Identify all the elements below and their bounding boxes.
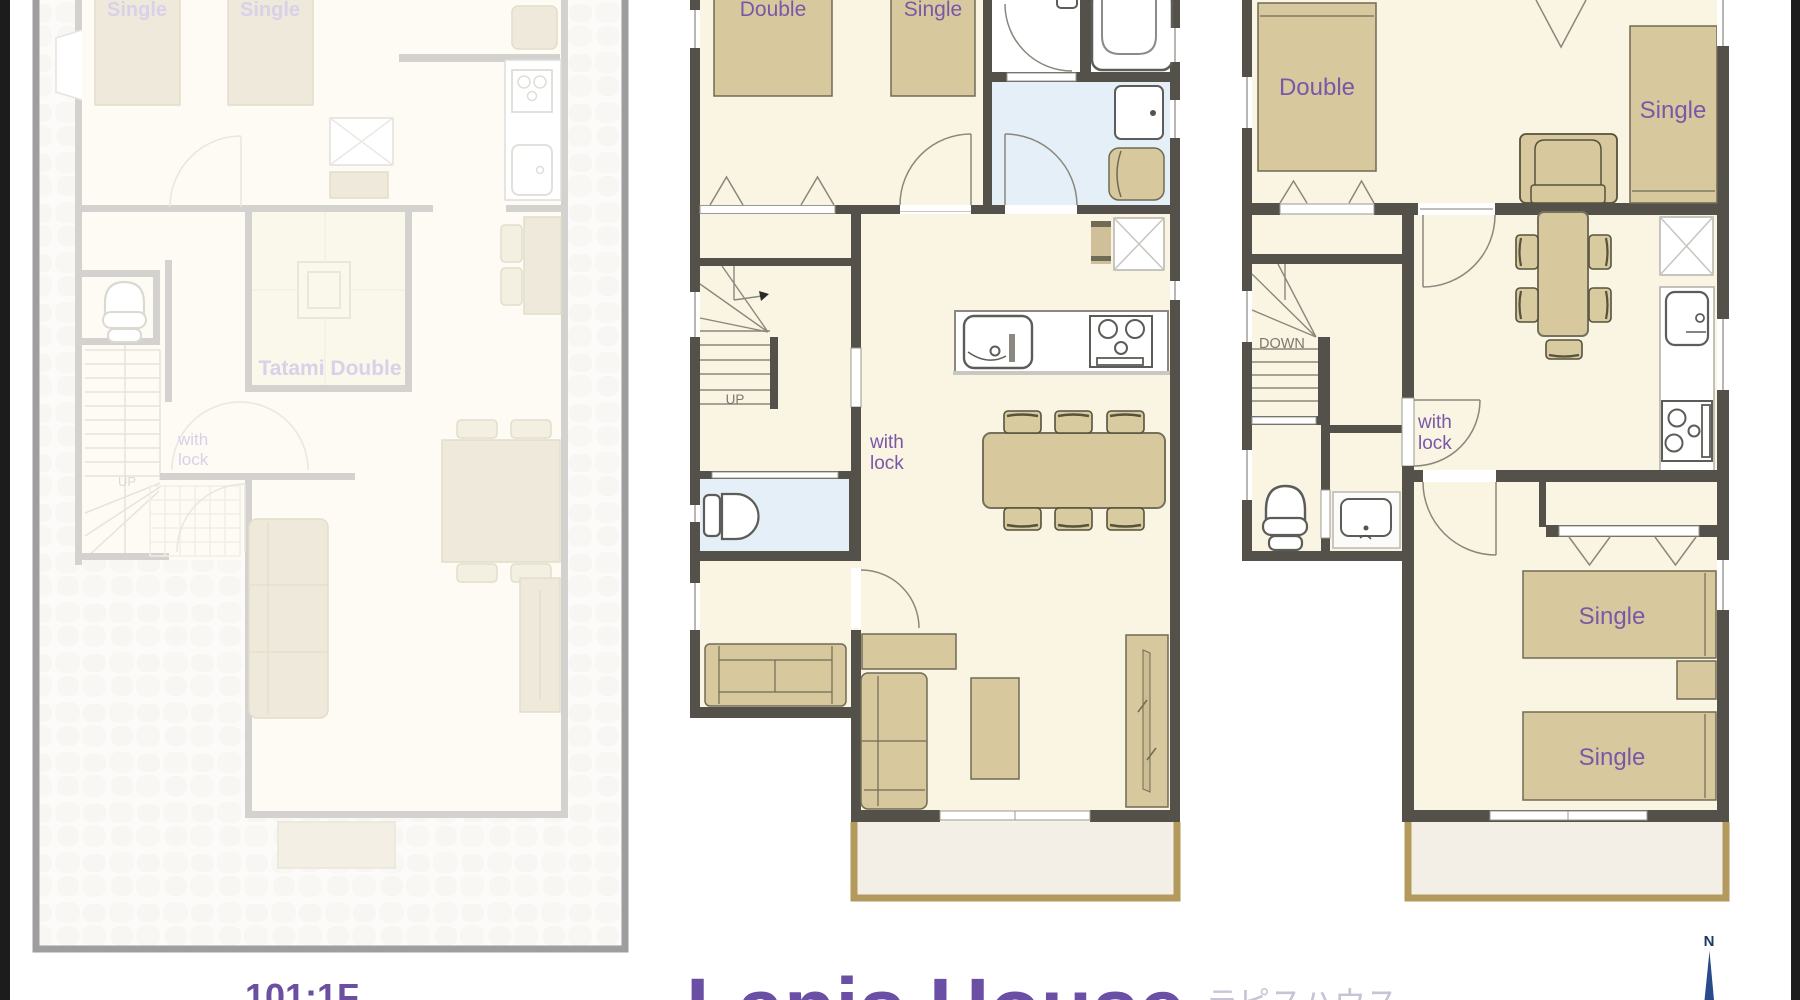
svg-text:Single: Single (107, 0, 167, 21)
svg-text:Single: Single (1579, 744, 1646, 771)
svg-text:Tatami Double: Tatami Double (258, 357, 401, 380)
svg-text:lock: lock (178, 450, 209, 469)
svg-text:Single: Single (1579, 603, 1646, 630)
svg-text:lock: lock (870, 453, 904, 474)
svg-text:lock: lock (1418, 433, 1452, 454)
svg-text:with: with (177, 430, 208, 449)
svg-text:N: N (1704, 933, 1715, 950)
svg-text:DOWN: DOWN (1259, 336, 1305, 352)
svg-text:101:1F: 101:1F (245, 976, 359, 1000)
svg-text:UP: UP (726, 392, 745, 407)
svg-text:with: with (1417, 412, 1452, 433)
svg-text:with: with (869, 432, 904, 453)
svg-text:Single: Single (904, 0, 962, 21)
svg-text:Double: Double (1279, 74, 1355, 101)
svg-text:Double: Double (740, 0, 807, 21)
svg-text:Lapis House: Lapis House (686, 961, 1185, 1000)
svg-text:Single: Single (240, 0, 300, 21)
svg-text:UP: UP (118, 474, 136, 489)
svg-text:ラピスハウス: ラピスハウス (1206, 985, 1398, 1000)
svg-text:Single: Single (1640, 97, 1707, 124)
